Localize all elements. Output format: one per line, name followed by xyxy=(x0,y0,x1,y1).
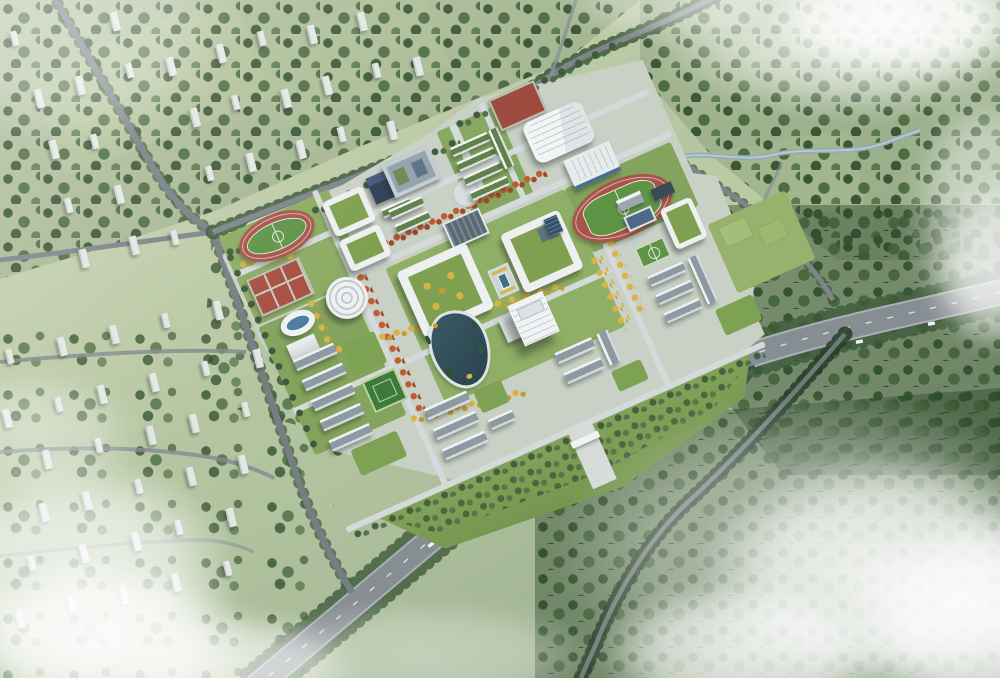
inner-court xyxy=(392,167,409,186)
courtyard-trees xyxy=(419,267,469,314)
tower-roof-units xyxy=(516,299,545,321)
residential-building xyxy=(4,348,14,364)
aerial-rendering xyxy=(0,0,1000,678)
court-line xyxy=(372,378,398,403)
inner-court xyxy=(411,158,428,177)
